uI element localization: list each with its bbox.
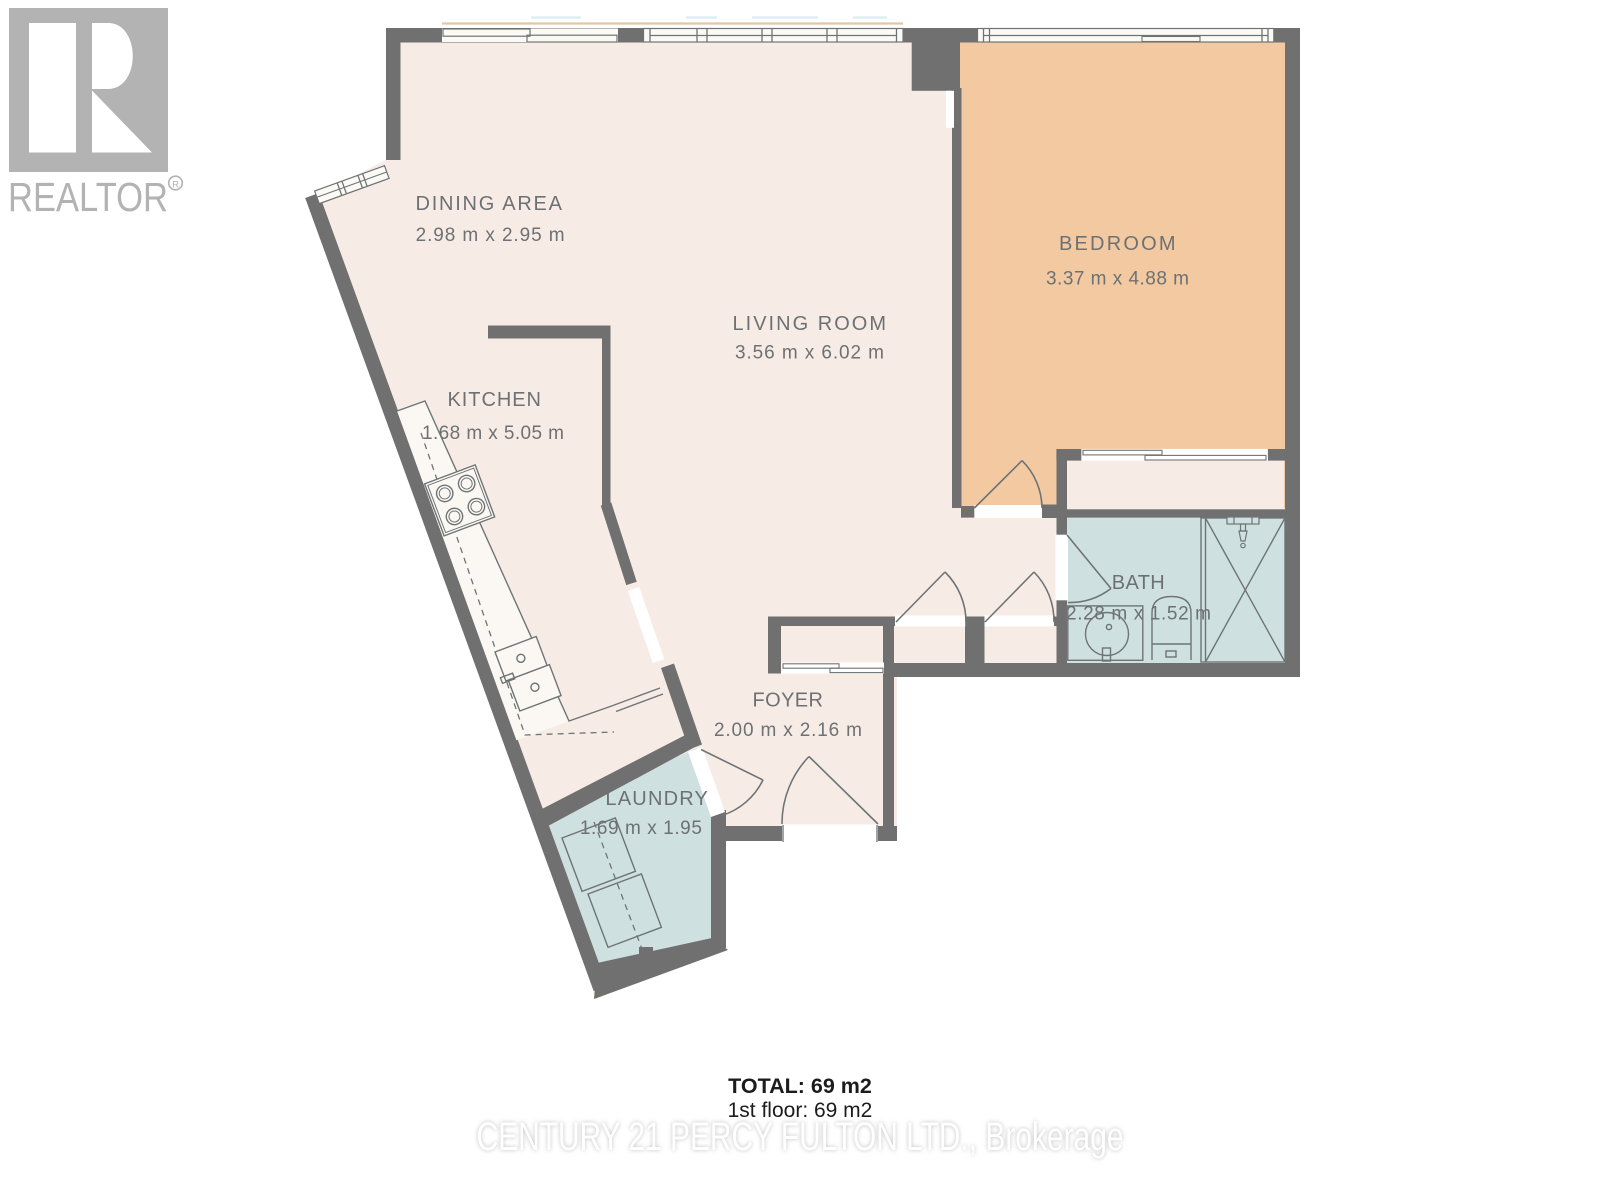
svg-text:BEDROOM: BEDROOM	[1059, 233, 1177, 255]
svg-text:BATH: BATH	[1112, 572, 1167, 594]
svg-text:FOYER: FOYER	[753, 690, 825, 712]
svg-text:2.98 m x 2.95 m: 2.98 m x 2.95 m	[416, 225, 566, 246]
svg-text:KITCHEN: KITCHEN	[448, 389, 543, 411]
svg-text:1.69 m x 1.95: 1.69 m x 1.95	[580, 818, 703, 839]
svg-text:LAUNDRY: LAUNDRY	[605, 788, 709, 810]
svg-text:REALTOR: REALTOR	[8, 174, 168, 220]
svg-text:CENTURY 21 PERCY FULTON LTD.,: CENTURY 21 PERCY FULTON LTD., Brokerage	[477, 1115, 1124, 1159]
svg-text:2.28 m x 1.52 m: 2.28 m x 1.52 m	[1066, 604, 1212, 625]
svg-text:DINING AREA: DINING AREA	[416, 193, 564, 215]
svg-text:3.56 m x 6.02 m: 3.56 m x 6.02 m	[735, 343, 885, 364]
svg-text:TOTAL: 69 m2: TOTAL: 69 m2	[728, 1074, 872, 1098]
svg-text:3.37 m x 4.88 m: 3.37 m x 4.88 m	[1046, 269, 1190, 290]
svg-text:1.68 m x 5.05 m: 1.68 m x 5.05 m	[422, 423, 565, 444]
svg-text:2.00 m x 2.16 m: 2.00 m x 2.16 m	[714, 720, 863, 741]
svg-text:R: R	[172, 180, 179, 191]
svg-text:LIVING ROOM: LIVING ROOM	[733, 313, 888, 335]
